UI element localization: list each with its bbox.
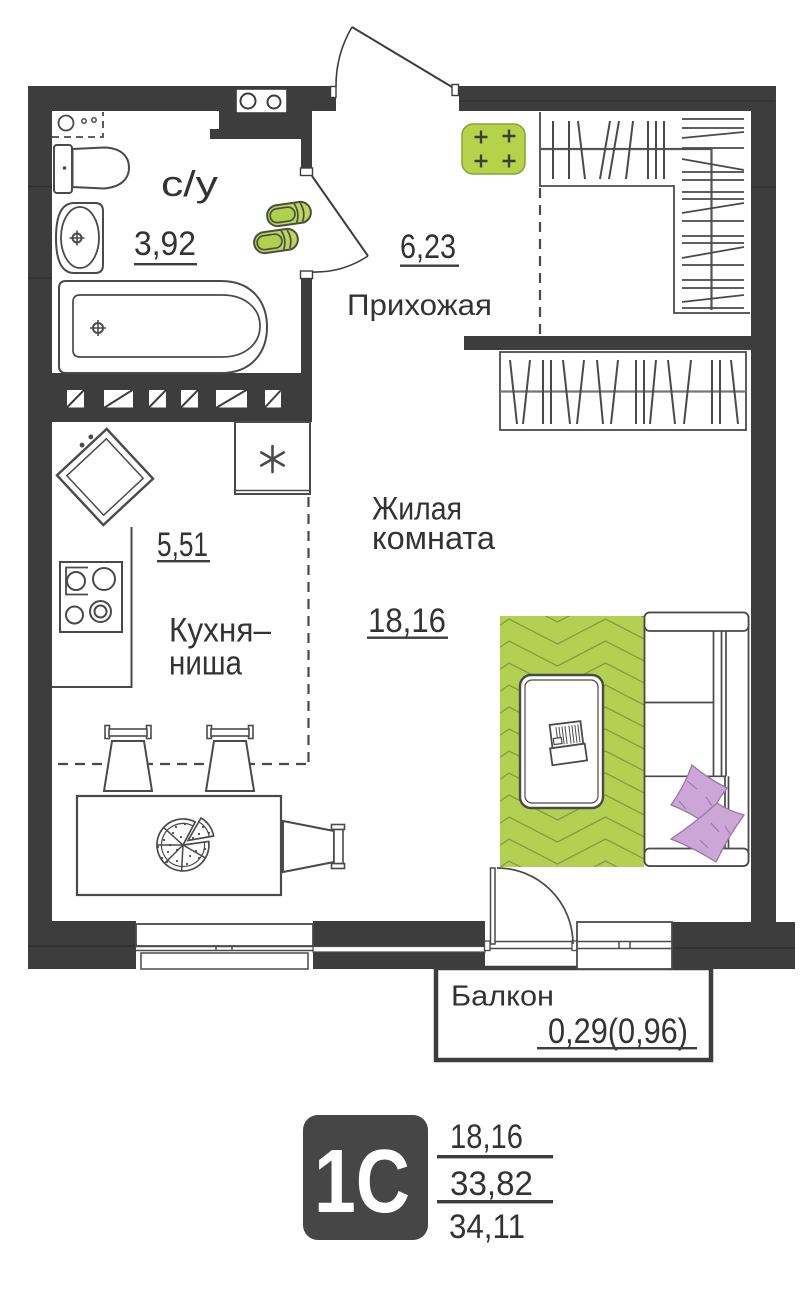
svg-text:5,51: 5,51 — [157, 526, 208, 564]
svg-text:0,29(0,96): 0,29(0,96) — [548, 1012, 688, 1051]
svg-text:1С: 1С — [314, 1132, 410, 1232]
svg-text:6,23: 6,23 — [400, 228, 456, 266]
svg-text:Балкон: Балкон — [451, 981, 554, 1013]
svg-text:18,16: 18,16 — [450, 1118, 523, 1156]
svg-text:33,82: 33,82 — [450, 1165, 533, 1203]
svg-text:Прихожая: Прихожая — [347, 289, 492, 322]
svg-text:3,92: 3,92 — [134, 225, 196, 263]
svg-text:18,16: 18,16 — [368, 602, 446, 640]
svg-text:34,11: 34,11 — [449, 1208, 525, 1246]
svg-text:комната: комната — [372, 520, 495, 556]
svg-text:ниша: ниша — [169, 645, 242, 683]
svg-text:с/у: с/у — [161, 163, 218, 204]
